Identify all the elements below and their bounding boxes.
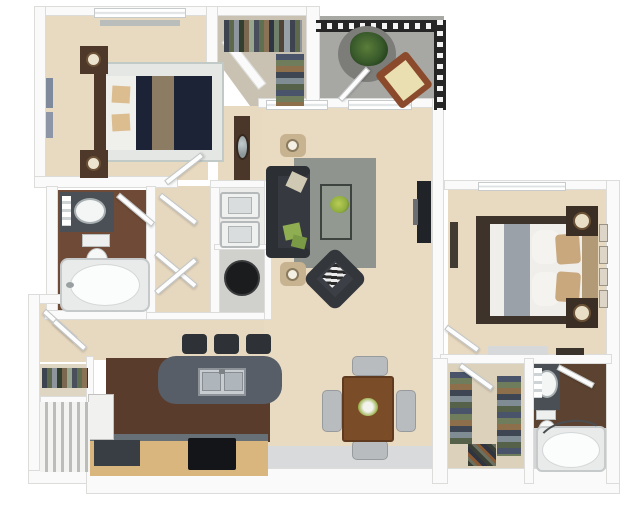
- bedroom1-accent-pillow-1: [112, 86, 131, 104]
- wall-living-east: [432, 98, 444, 366]
- bedroom2-wall-art-east-3: [599, 268, 608, 286]
- bedroom1-window: [94, 8, 186, 18]
- living-lamp-north: [286, 139, 299, 152]
- laundry-washer-door: [228, 197, 252, 214]
- kitchen-stove: [188, 438, 236, 470]
- laundry-dryer-door: [228, 226, 252, 243]
- wall-west-lower: [28, 294, 40, 480]
- wall-west-upper: [34, 6, 46, 182]
- living-coffee-table-plant: [330, 196, 349, 213]
- balcony-plant: [350, 32, 388, 66]
- coat-closet-clothes: [42, 368, 88, 388]
- bedroom1-lamp-north: [86, 52, 101, 67]
- hall-floor: [152, 186, 216, 316]
- dining-chair-east: [396, 390, 416, 432]
- dining-chair-south: [352, 440, 388, 460]
- bedroom2-wall-art-east-2: [599, 246, 608, 264]
- kitchen-dark-cabinet: [94, 440, 140, 466]
- closet2-shoes: [468, 444, 496, 466]
- balcony-railing-right: [434, 20, 446, 110]
- kitchen-barstool-1: [182, 334, 207, 354]
- bedroom2-window: [478, 182, 566, 191]
- bedroom2-low-console: [488, 346, 548, 355]
- dining-centerpiece: [358, 398, 378, 416]
- closet2-stack-right: [497, 376, 521, 456]
- bath2-toilet-tank: [536, 410, 556, 420]
- bedroom1-lamp-south: [86, 156, 101, 171]
- living-sofa-back: [266, 172, 278, 252]
- wall-hall-south: [146, 312, 272, 320]
- utility-water-heater: [224, 260, 260, 296]
- bedroom2-lamp-south: [573, 304, 591, 322]
- foyer-mirror: [236, 134, 249, 160]
- bedroom2-wall-art-east-4: [599, 290, 608, 308]
- dining-chair-north: [352, 356, 388, 376]
- bedroom2-pillow-tan-1: [555, 233, 581, 265]
- closet1-hanging-clothes: [224, 20, 302, 52]
- bedroom2-wall-art-east-1: [599, 224, 608, 242]
- living-lamp-south: [286, 268, 299, 281]
- bedroom1-headboard: [94, 74, 106, 152]
- bath1-tub-faucet: [66, 282, 74, 288]
- bedroom2-bed-runner: [504, 224, 530, 316]
- bath1-towels: [62, 196, 71, 226]
- wall-laundry-north: [210, 180, 270, 188]
- wall-closet2-east: [524, 358, 534, 484]
- kitchen-fridge: [88, 394, 114, 440]
- louvered-doors: [40, 402, 90, 472]
- kitchen-sink-basin-1: [202, 372, 221, 391]
- floor-plan-render: [0, 0, 639, 523]
- bedroom2-wall-art-west: [450, 222, 458, 268]
- dining-chair-west: [322, 390, 342, 432]
- bath1-toilet-tank: [82, 234, 110, 247]
- closet2-stack-left: [450, 372, 472, 444]
- bedroom2-dark-item: [556, 348, 584, 355]
- wall-east: [606, 180, 620, 484]
- bedroom1-wall-art-1: [46, 78, 53, 108]
- bath1-sink: [74, 198, 106, 224]
- kitchen-sink-basin-2: [224, 372, 243, 391]
- bedroom1-accent-pillow-2: [112, 114, 131, 132]
- living-tv-mount: [413, 199, 418, 225]
- living-tv: [417, 181, 431, 243]
- bath2-towels: [534, 368, 542, 398]
- kitchen-barstool-2: [214, 334, 239, 354]
- bedroom1-curtain: [100, 20, 180, 26]
- wall-closet2-west: [432, 358, 448, 484]
- bedroom1-bed-runner: [152, 76, 174, 150]
- kitchen-barstool-3: [246, 334, 271, 354]
- bedroom1-wall-art-2: [46, 112, 53, 138]
- bedroom2-lamp-north: [573, 212, 591, 230]
- closet1-folded-stack: [276, 54, 304, 106]
- bath1-tub-basin: [70, 264, 140, 306]
- bedroom1-duvet: [136, 76, 212, 150]
- kitchen-faucet: [219, 369, 225, 374]
